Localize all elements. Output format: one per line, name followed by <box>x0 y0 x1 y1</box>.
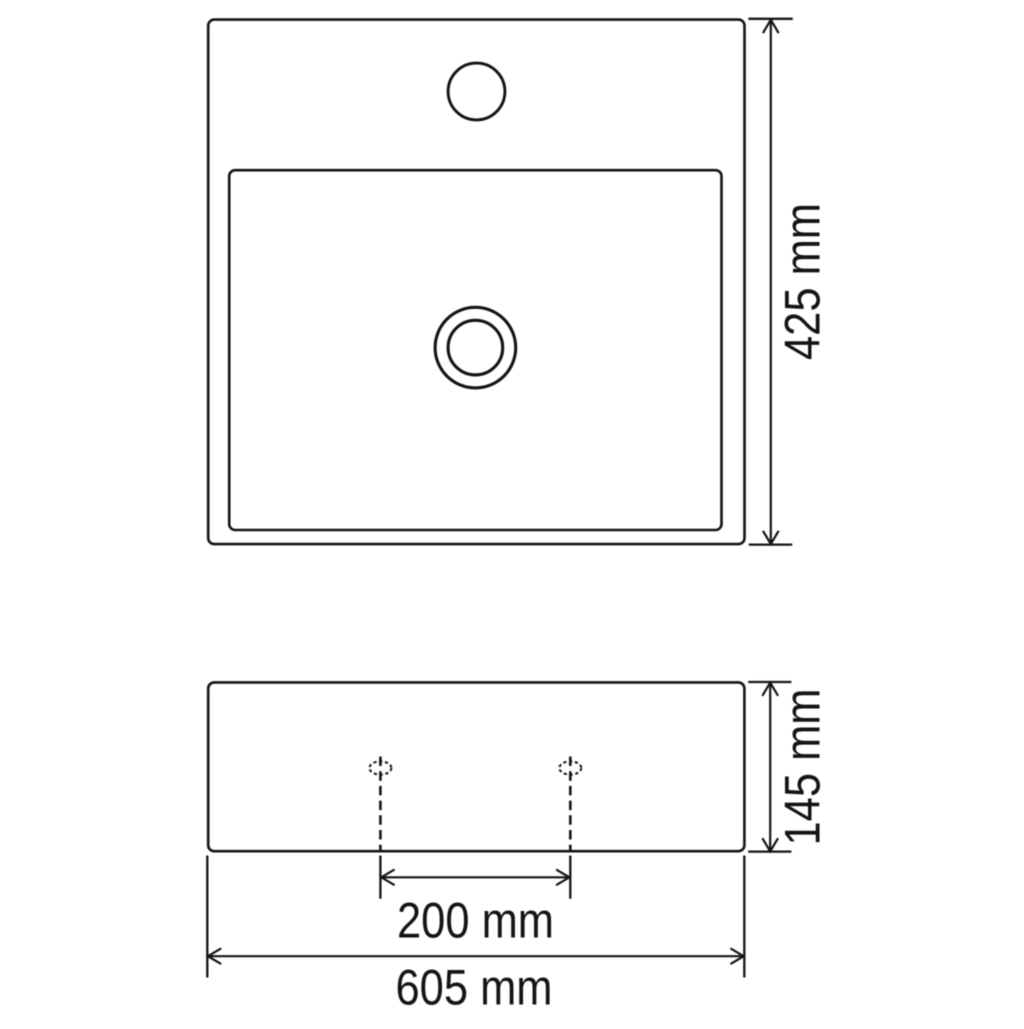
svg-text:145 mm: 145 mm <box>775 689 831 846</box>
svg-text:425 mm: 425 mm <box>775 203 831 360</box>
svg-text:200 mm: 200 mm <box>397 893 554 949</box>
svg-text:605 mm: 605 mm <box>396 960 553 1016</box>
